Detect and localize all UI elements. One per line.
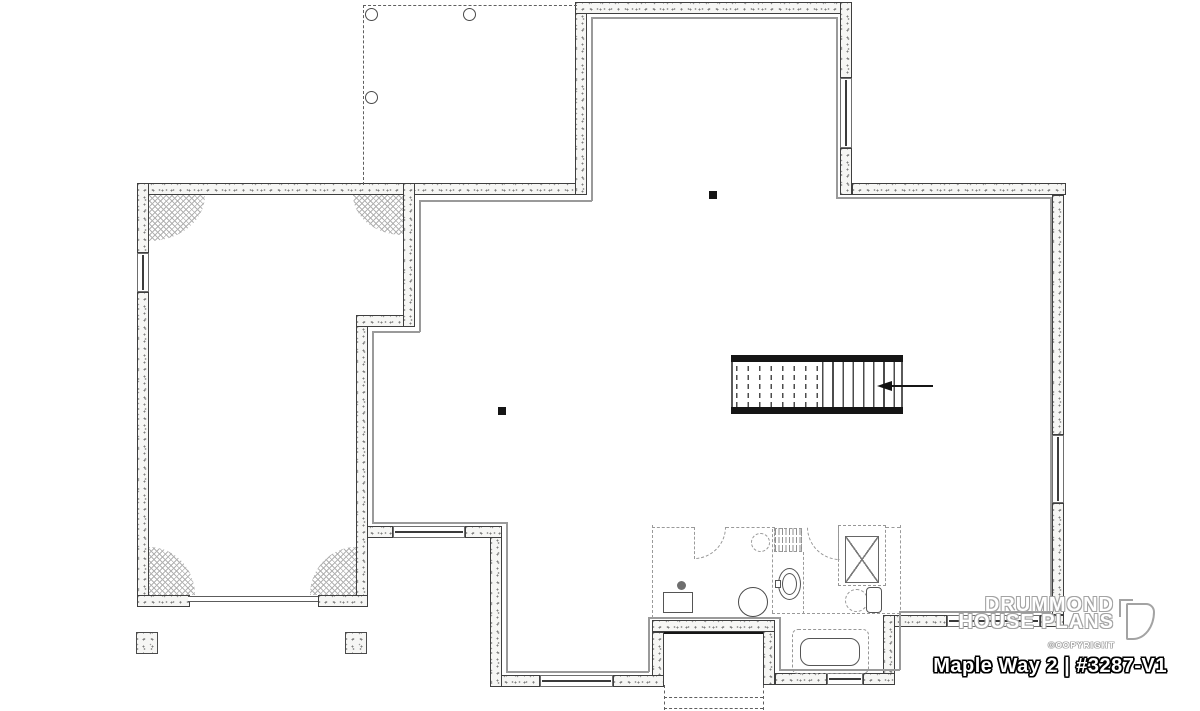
garage-basement-wall-lower bbox=[356, 315, 368, 607]
wall-finish-line bbox=[836, 17, 838, 198]
stairwell-top-wall bbox=[652, 620, 775, 632]
floor-drain bbox=[677, 581, 686, 590]
wall-finish-line bbox=[506, 671, 649, 673]
sink-basin bbox=[782, 573, 797, 595]
wall-finish-line bbox=[779, 617, 781, 670]
porch-column bbox=[463, 8, 476, 21]
garage-top-wall bbox=[137, 183, 577, 195]
window bbox=[540, 675, 613, 687]
sink-faucet bbox=[775, 580, 781, 588]
door-swing-arc bbox=[694, 527, 726, 559]
garage-front-wall-left bbox=[137, 595, 190, 607]
projection-left-wall bbox=[575, 2, 587, 195]
garage-left-wall-upper bbox=[137, 183, 149, 253]
brand-line2: HOUSE PLANS bbox=[959, 614, 1114, 631]
garage-left-wall-lower bbox=[137, 292, 149, 607]
copyright-label: ©COPYRIGHT bbox=[933, 640, 1115, 650]
plan-title: Maple Way 2 | #3287-V1 bbox=[933, 655, 1167, 678]
bath-partition-dash bbox=[652, 525, 653, 618]
stair-stringer-top bbox=[731, 355, 903, 362]
wall-finish-line bbox=[372, 331, 420, 333]
bath-partition-dash bbox=[900, 525, 901, 615]
wall-finish-line bbox=[419, 200, 592, 202]
structural-post bbox=[498, 407, 506, 415]
window bbox=[827, 673, 863, 685]
garage-front-wall-right bbox=[318, 595, 368, 607]
porch-column bbox=[365, 91, 378, 104]
stair-direction-arrow bbox=[877, 381, 892, 391]
garage-door bbox=[188, 596, 318, 602]
wall-finish-line bbox=[506, 522, 508, 672]
logo-d-shape bbox=[1126, 603, 1155, 640]
stair-edge bbox=[731, 362, 733, 407]
walkout-threshold bbox=[664, 632, 763, 634]
drummond-logo-icon bbox=[1119, 597, 1153, 639]
wall-finish-line bbox=[372, 522, 507, 524]
linen-shelves bbox=[774, 528, 802, 552]
porch-outline-dash bbox=[363, 5, 364, 185]
mid-bottom-wall-right bbox=[465, 526, 502, 538]
bath-partition-dash bbox=[803, 552, 804, 614]
door-swing-curve bbox=[694, 527, 726, 559]
structural-post bbox=[709, 191, 717, 199]
bath-bottom-wall-right bbox=[863, 673, 895, 685]
wall-finish-line bbox=[372, 331, 374, 523]
toilet-bowl bbox=[845, 589, 868, 612]
stair-treads-hidden bbox=[736, 362, 822, 407]
bath-bottom-wall-left bbox=[775, 673, 827, 685]
exterior-stair-dash bbox=[664, 697, 763, 698]
wall-finish-line bbox=[1050, 197, 1052, 612]
porch-column bbox=[365, 8, 378, 21]
window bbox=[840, 78, 852, 148]
porch-outline-dash bbox=[363, 5, 577, 6]
wall-finish-line bbox=[648, 617, 780, 619]
projection-right-wall-upper bbox=[840, 2, 852, 78]
window bbox=[1052, 435, 1064, 503]
top-right-wall bbox=[852, 183, 1066, 195]
window bbox=[137, 253, 149, 292]
shower-base bbox=[845, 536, 879, 583]
exterior-stair-dash bbox=[664, 708, 763, 709]
bath-partition-dash bbox=[726, 527, 775, 528]
water-heater bbox=[738, 587, 768, 617]
wall-finish-line bbox=[836, 197, 1051, 199]
garage-basement-wall-upper bbox=[403, 183, 415, 327]
future-fixture bbox=[751, 533, 770, 552]
brand-wordmark: DRUMMOND HOUSE PLANS bbox=[959, 597, 1114, 631]
sw-vertical-wall bbox=[490, 526, 502, 687]
wall-finish-line bbox=[591, 17, 836, 19]
basement-floor-plan-sheet: DRUMMOND HOUSE PLANS ©COPYRIGHT Maple Wa… bbox=[0, 0, 1200, 711]
corner-hatch bbox=[310, 547, 356, 595]
door-swing-curve bbox=[807, 527, 840, 560]
wall-finish-line bbox=[899, 611, 901, 670]
brand-row: DRUMMOND HOUSE PLANS bbox=[933, 597, 1153, 639]
wall-finish-line bbox=[648, 617, 650, 672]
bath-partition-dash bbox=[772, 613, 900, 614]
corner-hatch bbox=[149, 195, 205, 241]
bath-partition-dash bbox=[886, 527, 900, 528]
wall-finish-line bbox=[419, 200, 421, 332]
right-wall-upper bbox=[1052, 195, 1064, 435]
corner-hatch bbox=[353, 195, 403, 235]
laundry-tub bbox=[663, 592, 693, 613]
door-swing-arc bbox=[807, 527, 840, 560]
corner-hatch bbox=[149, 547, 195, 595]
exterior-stair-dash bbox=[763, 685, 764, 710]
column-footing bbox=[136, 632, 158, 654]
bath-partition-dash bbox=[652, 527, 694, 528]
projection-top-wall bbox=[575, 2, 852, 14]
toilet-tank bbox=[866, 587, 882, 613]
bathtub bbox=[800, 638, 860, 666]
stair-stringer-bottom bbox=[731, 407, 903, 414]
window bbox=[393, 526, 465, 538]
projection-right-wall-lower bbox=[840, 148, 852, 195]
bath-partition-dash bbox=[772, 529, 773, 613]
title-block: DRUMMOND HOUSE PLANS ©COPYRIGHT Maple Wa… bbox=[933, 597, 1167, 678]
bottom-mid-wall-right bbox=[613, 675, 664, 687]
column-footing bbox=[345, 632, 367, 654]
wall-finish-line bbox=[591, 17, 593, 201]
